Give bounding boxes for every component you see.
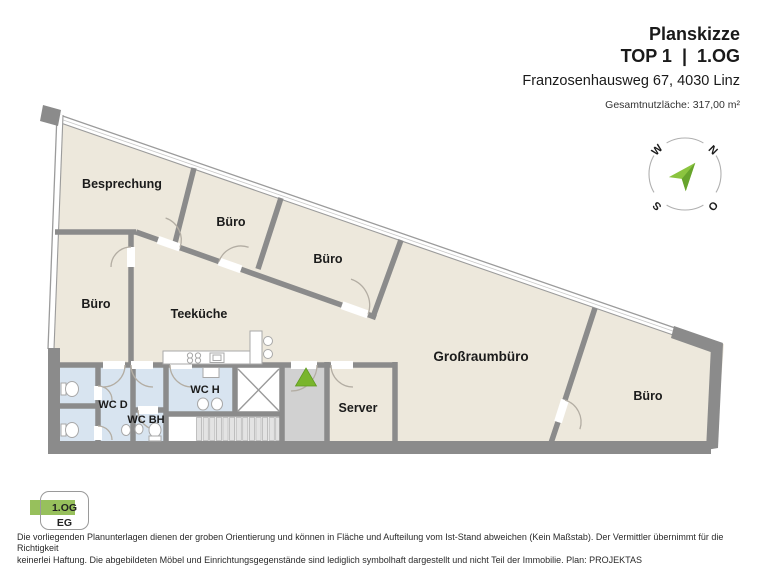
room-label-buero-1: Büro — [216, 215, 246, 229]
total-area-label: Gesamtnutzläche: 317,00 m² — [522, 99, 740, 111]
kitchen-counter — [163, 351, 252, 364]
sink — [198, 398, 209, 410]
sink — [212, 398, 223, 410]
kitchen-island — [250, 331, 262, 364]
unit-subtitle: TOP 1 | 1.OG — [522, 46, 740, 68]
room-label-server: Server — [339, 401, 378, 415]
floor-option-eg[interactable]: EG — [41, 516, 88, 530]
disclaimer-line-2: keinerlei Haftung. Die abgebildeten Möbe… — [17, 555, 757, 566]
room-label-wc-bh: WC BH — [127, 414, 164, 426]
compass: W N O S — [649, 138, 721, 213]
floor-option-1og[interactable]: 1.OG — [41, 502, 88, 516]
disclaimer: Die vorliegenden Planunterlagen dienen d… — [17, 532, 757, 566]
sink — [122, 425, 131, 436]
toilet — [66, 423, 79, 438]
room-label-wc-h: WC H — [190, 384, 219, 396]
header: Planskizze TOP 1 | 1.OG Franzosenhausweg… — [522, 24, 740, 111]
washbasin — [203, 368, 219, 378]
toilet — [66, 382, 79, 397]
room-label-buero-4: Büro — [633, 389, 663, 403]
address-line: Franzosenhausweg 67, 4030 Linz — [522, 73, 740, 90]
stool — [264, 350, 273, 359]
room-label-teekueche: Teeküche — [171, 307, 228, 321]
toilet-tank — [149, 436, 161, 441]
page: Besprechung Büro Büro Büro Teeküche WC D… — [0, 0, 768, 576]
room-label-buero-2: Büro — [313, 252, 343, 266]
room-label-wc-d: WC D — [98, 399, 127, 411]
corner-pillar — [40, 105, 61, 126]
disclaimer-line-1: Die vorliegenden Planunterlagen dienen d… — [17, 532, 757, 555]
room-label-grossraumbuero: Großraumbüro — [433, 349, 528, 364]
kitchen-sink — [210, 353, 224, 363]
north-arrow-icon — [669, 156, 704, 192]
stool — [264, 337, 273, 346]
floor-selector-box: 1.OG EG — [40, 491, 89, 530]
room-label-besprechung: Besprechung — [82, 177, 162, 191]
room-label-buero-3: Büro — [81, 297, 111, 311]
page-title: Planskizze — [522, 24, 740, 46]
